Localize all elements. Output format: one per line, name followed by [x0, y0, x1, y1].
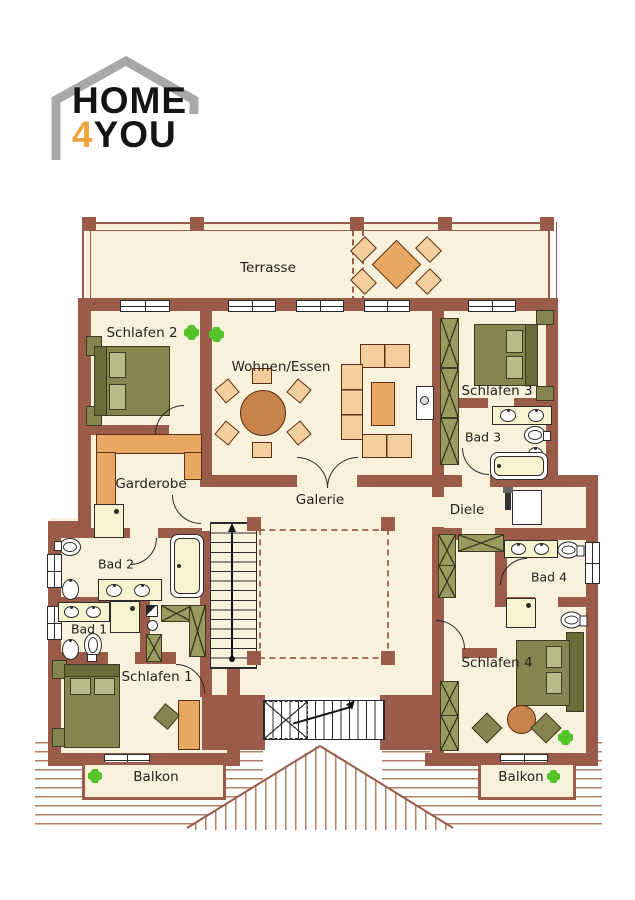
toilet: [84, 633, 102, 657]
window: [364, 300, 410, 312]
bed-pillow: [109, 384, 126, 410]
room-label-schlafen1: Schlafen 1: [121, 669, 192, 685]
dining-chair: [252, 442, 272, 458]
logo-text: HOME 4YOU: [72, 84, 187, 152]
room-label-bad4: Bad 4: [531, 570, 567, 585]
wardrobe: [438, 534, 456, 567]
room-label-schlafen4: Schlafen 4: [461, 655, 532, 671]
wardrobe: [458, 534, 504, 552]
plant-icon: [184, 325, 199, 340]
sink: [64, 606, 79, 618]
room-label-galerie: Galerie: [296, 492, 344, 508]
utility-circle: [147, 620, 158, 631]
stair-start-dot: [229, 656, 235, 662]
shower-enclosure: [512, 490, 542, 525]
wardrobe-bench: [96, 434, 202, 454]
terrace-post: [438, 217, 452, 231]
wall: [202, 475, 297, 487]
shower-head-knob: [503, 487, 513, 493]
logo-word2: YOU: [94, 114, 177, 155]
sink: [134, 584, 150, 597]
wall: [458, 398, 488, 408]
wall: [495, 528, 598, 540]
bed-pillow: [546, 646, 562, 668]
sink: [511, 543, 526, 555]
sofa-two-seat: [362, 434, 412, 458]
wardrobe: [161, 605, 192, 622]
tv-unit-knob: [420, 396, 429, 405]
desk: [178, 700, 200, 750]
terrace-rail-left: [82, 222, 91, 306]
bed-headboard: [64, 664, 120, 677]
bed-headboard: [94, 346, 107, 416]
shower: [506, 598, 536, 628]
wardrobe: [438, 565, 456, 598]
bed-pillow: [94, 678, 115, 695]
room-label-garderobe: Garderobe: [115, 476, 186, 492]
window: [47, 554, 62, 588]
terrace-divider-dashed: [352, 230, 355, 302]
sofa-two-seat: [360, 344, 410, 368]
bathtub: [490, 452, 548, 480]
sink: [534, 543, 549, 555]
stair-arrow-up: [228, 523, 236, 532]
bed-pillow: [506, 330, 523, 353]
coffee-table: [371, 382, 395, 426]
window: [228, 300, 276, 312]
wardrobe-bench: [184, 452, 202, 480]
room-label-bad2: Bad 2: [98, 557, 134, 572]
bidet: [62, 639, 79, 660]
window: [585, 542, 600, 584]
plant-icon: [209, 327, 224, 342]
wall: [202, 695, 265, 750]
nightstand: [536, 310, 554, 325]
toilet: [59, 538, 81, 556]
gallery-void-dashed: [259, 529, 389, 659]
wardrobe: [440, 418, 459, 465]
sink: [528, 409, 544, 422]
toilet: [561, 612, 583, 629]
terrace-post: [82, 217, 96, 231]
room-label-terrasse: Terrasse: [240, 260, 296, 276]
bidet: [62, 579, 79, 600]
gallery-post: [247, 651, 261, 665]
room-label-balkon-left: Balkon: [133, 769, 178, 785]
shower-head: [505, 492, 511, 510]
terrace-post: [190, 217, 204, 231]
staircase-up: [210, 522, 257, 669]
wardrobe: [440, 681, 459, 717]
floor-plan-page: HOME 4YOU: [0, 0, 635, 900]
sink: [86, 606, 101, 618]
window: [296, 300, 344, 312]
wardrobe: [440, 715, 459, 751]
bathtub: [170, 534, 204, 598]
room-label-diele: Diele: [450, 502, 485, 518]
gallery-post: [381, 651, 395, 665]
terrace-rail-top: [84, 222, 554, 231]
plant-icon: [547, 770, 560, 783]
wardrobe: [440, 368, 459, 418]
toilet: [558, 542, 580, 559]
room-label-balkon-right: Balkon: [498, 769, 543, 785]
plant-icon: [88, 769, 102, 783]
plant-icon: [558, 730, 573, 745]
wall: [357, 475, 462, 487]
room-label-schlafen3: Schlafen 3: [461, 383, 532, 399]
toilet: [524, 426, 546, 444]
terrace-floor: [86, 224, 548, 306]
logo-digit: 4: [72, 114, 94, 155]
wall: [432, 487, 444, 497]
sink: [500, 409, 516, 422]
nightstand: [536, 386, 554, 401]
bed-pillow: [546, 672, 562, 694]
bed-pillow: [506, 356, 523, 379]
dining-table: [240, 390, 286, 436]
window: [468, 300, 516, 312]
terrace-rail-right: [548, 222, 557, 306]
room-label-bad1: Bad 1: [71, 622, 107, 637]
room-label-wohnen: Wohnen/Essen: [232, 359, 331, 375]
gallery-post: [247, 517, 261, 531]
terrace-post: [350, 217, 364, 231]
shower: [110, 601, 140, 633]
wardrobe: [440, 318, 459, 368]
bed-headboard: [525, 324, 538, 386]
wardrobe: [189, 605, 206, 657]
sofa-three-seat: [341, 364, 363, 440]
wall: [586, 475, 598, 766]
wardrobe: [146, 634, 162, 662]
window: [120, 300, 170, 312]
room-label-schlafen2: Schlafen 2: [106, 325, 177, 341]
stair-walkline: [231, 531, 233, 659]
gallery-post: [381, 517, 395, 531]
sink: [106, 584, 122, 597]
utility-box: [146, 605, 158, 617]
bed-pillow: [109, 352, 126, 378]
shower: [94, 504, 124, 538]
bed-pillow: [70, 678, 91, 695]
room-label-bad3: Bad 3: [465, 430, 501, 445]
terrace-post: [540, 217, 554, 231]
